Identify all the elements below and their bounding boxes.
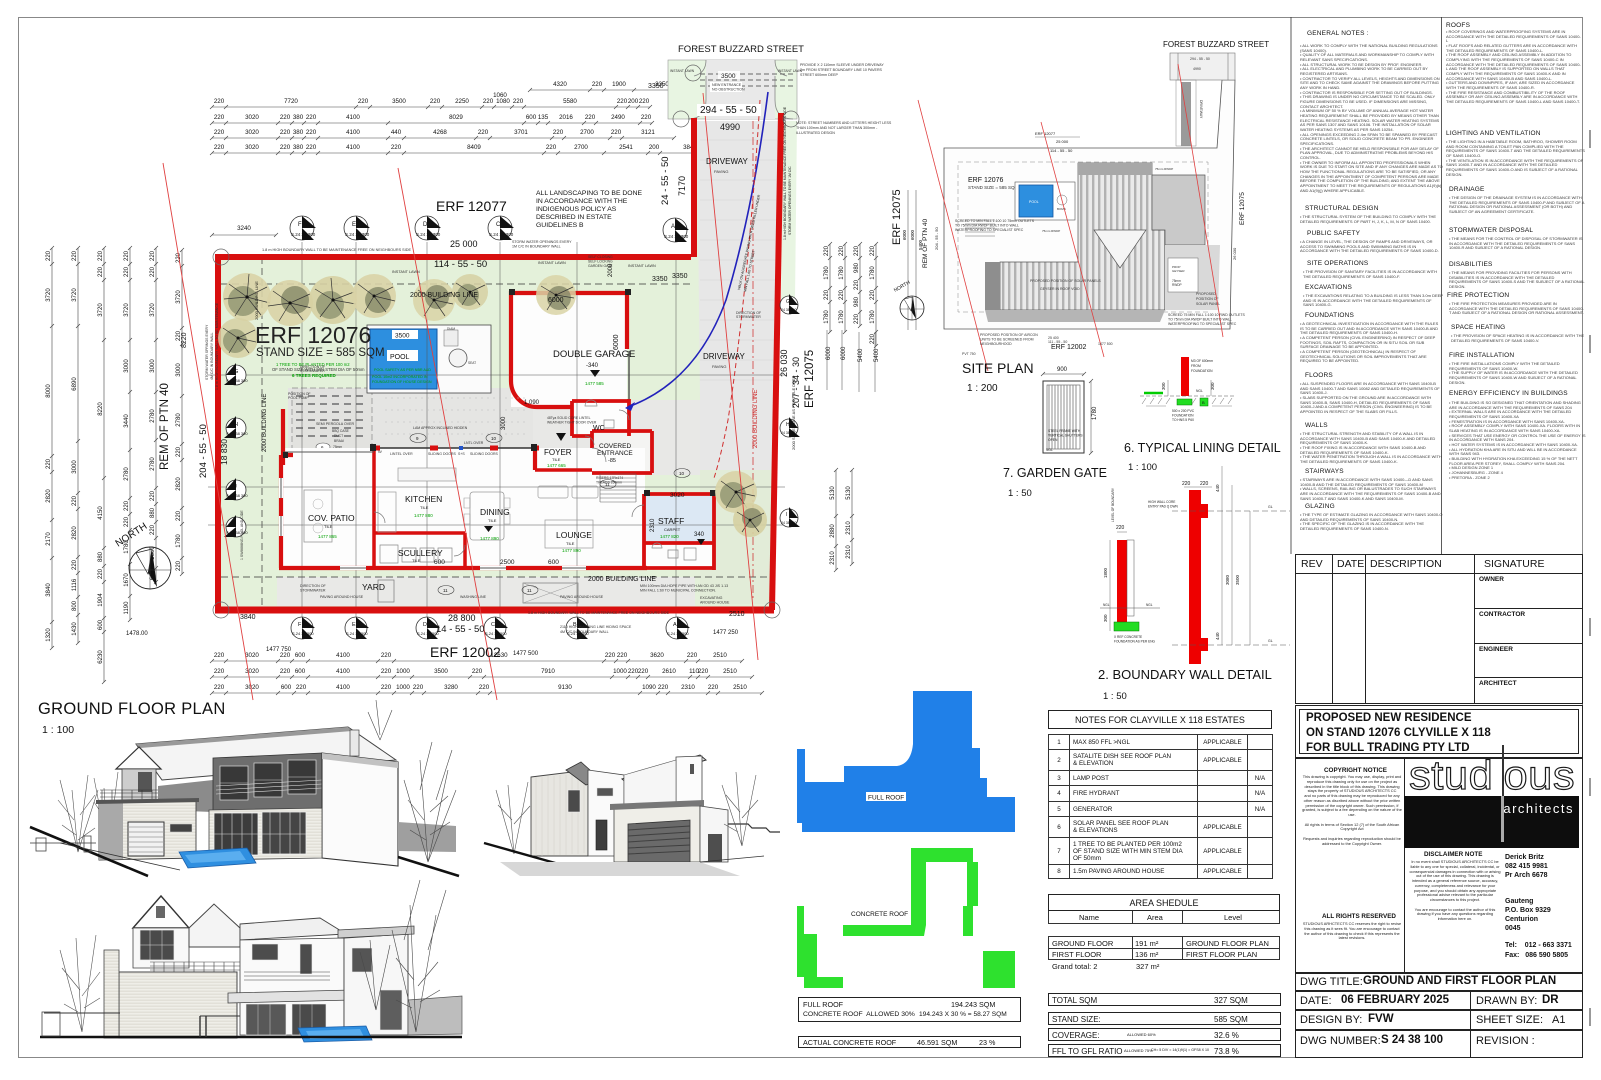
svg-text:LAM APPROX INCLINED HIDDEN: LAM APPROX INCLINED HIDDEN — [413, 426, 468, 430]
svg-text:GL: GL — [1268, 505, 1273, 509]
svg-text:220: 220 — [214, 144, 225, 151]
svg-text:500 x 200 PVC: 500 x 200 PVC — [1172, 409, 1195, 413]
svg-text:1 SWIMMING POOL AND CIDE: 1 SWIMMING POOL AND CIDE — [240, 510, 244, 560]
svg-text:POOL SAFETY AS PER NBR A&D: POOL SAFETY AS PER NBR A&D — [374, 368, 431, 372]
svg-text:5130: 5130 — [830, 486, 836, 500]
svg-text:2510: 2510 — [713, 652, 727, 659]
svg-text:-340: -340 — [586, 363, 599, 369]
svg-text:STORMWATER: STORMWATER — [300, 589, 326, 593]
svg-text:STAFF: STAFF — [658, 516, 684, 526]
svg-text:2780: 2780 — [150, 457, 156, 471]
svg-text:COVERED: COVERED — [599, 443, 631, 450]
svg-text:1000: 1000 — [613, 668, 627, 675]
svg-text:3240: 3240 — [237, 225, 251, 232]
svg-text:440: 440 — [1215, 484, 1220, 492]
svg-text:ALL LANDSCAPING TO BE DONE: ALL LANDSCAPING TO BE DONE — [536, 190, 642, 197]
svg-text:11: 11 — [527, 588, 532, 593]
svg-text:1080: 1080 — [496, 98, 510, 105]
svg-text:114 - 55 - 50: 114 - 55 - 50 — [434, 259, 487, 270]
svg-text:220: 220 — [150, 250, 156, 261]
svg-text:2820: 2820 — [176, 477, 182, 491]
svg-text:1780: 1780 — [176, 534, 182, 548]
svg-text:TILE: TILE — [552, 457, 561, 462]
svg-text:4100: 4100 — [336, 668, 350, 675]
svg-text:7170: 7170 — [677, 176, 687, 196]
svg-text:220: 220 — [124, 500, 130, 511]
svg-text:LEVEL OF BOUNDARY: LEVEL OF BOUNDARY — [1111, 487, 1115, 522]
svg-text:HIGH WALL CORE: HIGH WALL CORE — [1148, 500, 1175, 504]
svg-text:24 38 300: 24 38 300 — [781, 521, 797, 525]
svg-text:220: 220 — [870, 245, 876, 256]
svg-text:PAVING: PAVING — [714, 169, 729, 174]
svg-text:3720: 3720 — [46, 288, 52, 302]
svg-text:TO HNS 5 P60: TO HNS 5 P60 — [1172, 418, 1194, 422]
svg-text:SOLAR PANEL: SOLAR PANEL — [1196, 302, 1220, 306]
svg-text:135: 135 — [538, 114, 549, 121]
svg-text:220: 220 — [150, 524, 156, 535]
svg-text:3840: 3840 — [240, 614, 256, 621]
svg-text:2000 BUILDING LINE: 2000 BUILDING LINE — [254, 281, 259, 320]
svg-text:BBQ CASE: BBQ CASE — [332, 429, 350, 433]
svg-text:1477 890: 1477 890 — [562, 548, 581, 553]
svg-text:2000: 2000 — [608, 263, 614, 277]
svg-text:I: I — [786, 512, 787, 518]
svg-text:204 - 55 - 50: 204 - 55 - 50 — [934, 227, 939, 250]
svg-text:3020: 3020 — [245, 668, 259, 675]
svg-text:S.24 38 300: S.24 38 300 — [485, 631, 507, 636]
svg-text:220: 220 — [214, 652, 225, 659]
svg-text:DRIVEWAY: DRIVEWAY — [706, 157, 748, 166]
svg-text:2310: 2310 — [681, 684, 695, 691]
svg-text:SCREED TO MIN FALL 1:100 10 75: SCREED TO MIN FALL 1:100 10 75mm OUTLETS — [955, 219, 1035, 223]
svg-text:3500: 3500 — [1235, 574, 1240, 585]
svg-text:DOUBLE GARAGE: DOUBLE GARAGE — [553, 349, 635, 360]
svg-text:STEEL FRAME WITH: STEEL FRAME WITH — [1048, 429, 1081, 433]
svg-text:STORM WATER OPENINGS EVERY: STORM WATER OPENINGS EVERY — [512, 240, 572, 244]
svg-text:3500: 3500 — [392, 98, 406, 105]
svg-text:220: 220 — [870, 289, 876, 300]
svg-text:7. GARDEN GATE: 7. GARDEN GATE — [1003, 466, 1107, 480]
svg-text:DIRECTION OF: DIRECTION OF — [300, 584, 327, 588]
svg-text:SELF LOCKING: SELF LOCKING — [588, 260, 613, 264]
svg-text:5130: 5130 — [846, 486, 852, 500]
svg-text:TO 75mm DIA RWDP BUILT INTO WA: TO 75mm DIA RWDP BUILT INTO WALL — [1168, 318, 1232, 322]
svg-text:WATERPROOFING TO SPECIALIST SP: WATERPROOFING TO SPECIALIST SPEC — [1168, 322, 1237, 326]
svg-text:1.8 m HIGH BOUNDARY WALL TO B: 1.8 m HIGH BOUNDARY WALL TO BE MAINTENAN… — [528, 611, 670, 615]
svg-text:220: 220 — [617, 98, 628, 105]
svg-text:2610: 2610 — [662, 668, 676, 675]
svg-text:220: 220 — [381, 684, 392, 691]
svg-text:2780: 2780 — [176, 413, 182, 427]
svg-text:ERF 12002: ERF 12002 — [1051, 344, 1087, 351]
svg-text:3350: 3350 — [648, 83, 664, 90]
svg-text:4100: 4100 — [346, 144, 360, 151]
svg-text:INSTANT LAWN: INSTANT LAWN — [538, 261, 566, 265]
svg-text:220: 220 — [513, 98, 524, 105]
svg-text:ERF 12076: ERF 12076 — [968, 177, 1004, 184]
svg-text:24 - 55 - 50: 24 - 55 - 50 — [660, 156, 671, 205]
svg-text:2. BOUNDARY WALL DETAIL: 2. BOUNDARY WALL DETAIL — [1098, 667, 1272, 682]
svg-text:1780: 1780 — [870, 266, 876, 280]
svg-text:EXCAVATING: EXCAVATING — [700, 596, 723, 600]
svg-text:LINTEL OVER: LINTEL OVER — [390, 452, 413, 456]
svg-text:220: 220 — [641, 114, 652, 121]
svg-text:2780: 2780 — [124, 467, 130, 481]
svg-text:PROPOSED POSITION OF SOLAR PA: PROPOSED POSITION OF SOLAR PANELS — [1030, 279, 1101, 283]
svg-text:2510: 2510 — [723, 668, 737, 675]
svg-text:TILE: TILE — [324, 524, 333, 529]
svg-text:S.24 38 300: S.24 38 300 — [226, 493, 248, 498]
svg-text:F: F — [298, 222, 302, 228]
svg-text:1477 500: 1477 500 — [513, 651, 539, 657]
svg-text:75mm RWDP: 75mm RWDP — [1042, 229, 1060, 233]
svg-text:NGL: NGL — [1046, 448, 1053, 452]
svg-text:1477 865: 1477 865 — [318, 534, 337, 539]
svg-text:980: 980 — [854, 262, 860, 273]
svg-text:ERF 12075: ERF 12075 — [1239, 192, 1246, 225]
svg-text:ERF 12076: ERF 12076 — [255, 322, 371, 348]
svg-text:800: 800 — [72, 600, 78, 611]
svg-text:18 830: 18 830 — [219, 439, 229, 465]
svg-text:10: 10 — [679, 471, 685, 476]
svg-text:INSTANT LAWN: INSTANT LAWN — [778, 69, 803, 73]
svg-text:220: 220 — [1116, 525, 1125, 531]
svg-text:S.24 38 300: S.24 38 300 — [345, 232, 370, 237]
svg-text:1904: 1904 — [98, 593, 104, 607]
svg-text:220: 220 — [124, 516, 130, 527]
svg-text:AROUND HOUSE: AROUND HOUSE — [700, 601, 730, 605]
svg-text:6 TREES REQUIRED: 6 TREES REQUIRED — [292, 373, 337, 378]
svg-text:ERF 12077: ERF 12077 — [1035, 131, 1056, 136]
svg-text:PAVING AROUND HOUSE: PAVING AROUND HOUSE — [560, 595, 604, 599]
svg-text:1090: 1090 — [642, 684, 656, 691]
svg-text:6000: 6000 — [548, 297, 564, 304]
svg-text:1780: 1780 — [839, 310, 845, 324]
svg-text:3000: 3000 — [150, 359, 156, 373]
svg-text:220: 220 — [381, 668, 392, 675]
svg-text:220: 220 — [472, 668, 483, 675]
svg-text:LOUNGE: LOUNGE — [556, 530, 592, 540]
svg-text:2510: 2510 — [733, 684, 747, 691]
svg-text:220: 220 — [98, 250, 104, 261]
svg-text:1M C/C IN BOUNDARY WALL: 1M C/C IN BOUNDARY WALL — [512, 245, 561, 249]
svg-text:YARD: YARD — [362, 582, 385, 592]
svg-text:S.24 38 300: S.24 38 300 — [667, 631, 689, 636]
svg-text:1780: 1780 — [839, 266, 845, 280]
svg-text:E: E — [352, 622, 356, 628]
svg-text:2700: 2700 — [574, 144, 588, 151]
svg-text:SEMI PERGOLA OVER: SEMI PERGOLA OVER — [316, 422, 355, 426]
svg-text:220: 220 — [176, 446, 182, 457]
svg-text:220: 220 — [280, 114, 291, 121]
svg-text:ENTRY PAD Q DWN: ENTRY PAD Q DWN — [1148, 505, 1178, 509]
svg-text:600: 600 — [281, 684, 292, 691]
svg-text:TILE: TILE — [566, 541, 575, 546]
svg-text:220: 220 — [854, 279, 860, 290]
svg-text:NEIGHBOURHOOD: NEIGHBOURHOOD — [980, 342, 1012, 346]
svg-text:NOTE: STREET NUMBERS AND LETTE: NOTE: STREET NUMBERS AND LETTERS HEIGHT … — [796, 121, 892, 125]
svg-text:DIAM: DIAM — [447, 327, 455, 331]
svg-text:WATERPROOFING TO SPECIALIST SP: WATERPROOFING TO SPECIALIST SPEC — [955, 228, 1024, 232]
svg-text:2490: 2490 — [611, 114, 625, 121]
svg-text:DRIVEWAY: DRIVEWAY — [703, 352, 745, 361]
svg-text:S.24 38 300: S.24 38 300 — [226, 378, 248, 383]
svg-text:INSTANT LAWN: INSTANT LAWN — [628, 264, 656, 268]
svg-text:STORMWATER: STORMWATER — [736, 315, 761, 319]
svg-text:FOUNDATION OF HOUSE DESIGN: FOUNDATION OF HOUSE DESIGN — [372, 380, 432, 384]
svg-text:3080: 3080 — [1225, 574, 1230, 585]
svg-text:4100: 4100 — [346, 129, 360, 136]
svg-text:4100: 4100 — [336, 684, 350, 691]
svg-text:REM OF PTN 40: REM OF PTN 40 — [922, 218, 929, 268]
svg-text:FOREST BUZZARD STREET: FOREST BUZZARD STREET — [678, 44, 804, 55]
svg-text:220: 220 — [605, 652, 616, 659]
svg-text:3280: 3280 — [444, 684, 458, 691]
svg-text:2170: 2170 — [46, 532, 52, 546]
svg-text:S+S: S+S — [458, 452, 465, 456]
svg-text:SELF CLOSING: SELF CLOSING — [588, 255, 613, 259]
svg-text:220: 220 — [687, 652, 698, 659]
svg-text:440: 440 — [391, 129, 402, 136]
svg-text:8220: 8220 — [181, 332, 188, 348]
svg-text:1000: 1000 — [396, 668, 410, 675]
svg-text:220: 220 — [98, 266, 104, 277]
svg-text:POOL PUMP: POOL PUMP — [288, 396, 309, 400]
svg-text:1477 500: 1477 500 — [1098, 342, 1113, 346]
svg-text:S.24 38 300: S.24 38 300 — [226, 530, 248, 535]
svg-text:8000: 8000 — [46, 384, 52, 398]
svg-text:1477 250: 1477 250 — [713, 630, 739, 636]
svg-text:INDIGENOUS POLICY AS: INDIGENOUS POLICY AS — [536, 206, 617, 213]
svg-text:1780: 1780 — [824, 266, 830, 280]
svg-text:STORM WATER OPENINGS EVERY 1M: STORM WATER OPENINGS EVERY 1M C/C — [788, 166, 792, 235]
svg-text:3020: 3020 — [245, 129, 259, 136]
svg-text:220: 220 — [358, 98, 369, 105]
svg-text:5400: 5400 — [918, 239, 923, 250]
svg-text:220: 220 — [280, 668, 291, 675]
svg-text:26 030: 26 030 — [779, 349, 789, 377]
svg-text:FOUNDATION AS PER ENG: FOUNDATION AS PER ENG — [1114, 640, 1156, 644]
svg-text:204 - 55 - 50: 204 - 55 - 50 — [198, 424, 209, 478]
svg-text:LNTL OVER: LNTL OVER — [464, 441, 484, 445]
svg-text:10: 10 — [491, 436, 497, 441]
svg-text:24 38 300: 24 38 300 — [781, 308, 797, 312]
svg-text:220: 220 — [72, 495, 78, 506]
svg-text:SLIDING DOORS: SLIDING DOORS — [428, 452, 456, 456]
svg-text:4100: 4100 — [346, 114, 360, 121]
svg-text:220: 220 — [72, 250, 78, 261]
svg-text:S.24 38 300: S.24 38 300 — [292, 631, 314, 636]
svg-text:220: 220 — [824, 289, 830, 300]
svg-text:220: 220 — [176, 510, 182, 521]
svg-text:NEW ENTRANCE: NEW ENTRANCE — [712, 83, 742, 87]
svg-text:1190: 1190 — [124, 601, 130, 615]
svg-text:3350: 3350 — [672, 273, 688, 280]
svg-text:THAN 100mm AND NOT LARGER THA: THAN 100mm AND NOT LARGER THAN 300mm - — [796, 126, 878, 130]
svg-text:220: 220 — [553, 129, 564, 136]
svg-text:600: 600 — [434, 559, 445, 566]
svg-text:PROVIDE X 2 110mm SLEEVE UNDER: PROVIDE X 2 110mm SLEEVE UNDER DRIVEWAY — [800, 63, 884, 67]
svg-text:PAVING: PAVING — [712, 364, 727, 369]
svg-text:4M C/C IN BOUNDARY WALL: 4M C/C IN BOUNDARY WALL — [560, 630, 609, 634]
svg-text:1800: 1800 — [1103, 567, 1108, 578]
svg-text:220: 220 — [479, 684, 490, 691]
svg-text:S.24 38 300: S.24 38 300 — [226, 431, 248, 436]
svg-text:3000: 3000 — [176, 363, 182, 377]
svg-text:220: 220 — [708, 684, 719, 691]
svg-text:220: 220 — [638, 668, 649, 675]
svg-text:1,090: 1,090 — [524, 400, 540, 406]
svg-text:GUIDELINES B: GUIDELINES B — [536, 222, 584, 229]
svg-text:1900: 1900 — [612, 81, 626, 88]
svg-text:PROPOSED POSITION OF AIRCON: PROPOSED POSITION OF AIRCON — [980, 333, 1038, 337]
svg-text:J: J — [234, 484, 237, 490]
svg-text:BRAAI: BRAAI — [334, 439, 344, 443]
svg-text:NGL: NGL — [1196, 389, 1203, 393]
svg-text:VERTICAL SHUTTERS: VERTICAL SHUTTERS — [1048, 434, 1083, 438]
svg-text:220: 220 — [124, 250, 130, 261]
svg-text:6230: 6230 — [98, 650, 104, 664]
svg-text:MIN FALL 1:60 TO MUNICIPAL CON: MIN FALL 1:60 TO MUNICIPAL CONNECTION. — [640, 589, 716, 593]
svg-text:CARPET: CARPET — [664, 527, 681, 532]
svg-text:W: W — [378, 449, 382, 454]
svg-text:1 : 200: 1 : 200 — [967, 383, 998, 394]
svg-text:220: 220 — [214, 114, 225, 121]
svg-text:FOYER: FOYER — [544, 448, 572, 457]
svg-text:STAND SIZE = 585 SQM: STAND SIZE = 585 SQM — [968, 185, 1019, 190]
svg-text:14 - 55 - 50: 14 - 55 - 50 — [436, 624, 485, 635]
svg-text:POOL 10m2 INCORPORATED IN: POOL 10m2 INCORPORATED IN — [372, 375, 428, 379]
svg-text:PAVING AROUND HOUSE: PAVING AROUND HOUSE — [320, 595, 364, 599]
svg-text:600: 600 — [98, 619, 104, 630]
svg-text:2310: 2310 — [650, 518, 656, 532]
svg-text:STORMWATER: STORMWATER — [300, 369, 325, 373]
svg-text:KITCHEN: KITCHEN — [405, 494, 442, 504]
svg-text:220: 220 — [592, 81, 603, 88]
svg-text:3701: 3701 — [514, 129, 528, 136]
svg-text:3840: 3840 — [46, 583, 52, 597]
svg-text:220: 220 — [430, 98, 441, 105]
svg-text:STREET 600mm DEEP: STREET 600mm DEEP — [800, 73, 838, 77]
svg-text:1060: 1060 — [493, 92, 507, 99]
svg-text:220: 220 — [854, 313, 860, 324]
svg-text:POOL: POOL — [390, 354, 410, 361]
svg-text:2780: 2780 — [150, 409, 156, 423]
svg-text:3350: 3350 — [652, 276, 668, 283]
svg-text:2000 BUILDING LINE: 2000 BUILDING LINE — [753, 390, 759, 448]
svg-text:ENTRANCE: ENTRANCE — [597, 450, 633, 457]
svg-text:2310: 2310 — [830, 551, 836, 565]
svg-text:220: 220 — [306, 114, 317, 121]
svg-text:1 : 100: 1 : 100 — [1128, 462, 1157, 473]
svg-text:200: 200 — [649, 144, 660, 151]
svg-text:2880: 2880 — [830, 524, 836, 538]
svg-text:PVT 750: PVT 750 — [962, 352, 976, 356]
svg-text:FOREST BUZZARD STREET: FOREST BUZZARD STREET — [1163, 40, 1269, 49]
svg-text:S.24 38 300: S.24 38 300 — [664, 234, 689, 239]
svg-text:INSTANT LAWN: INSTANT LAWN — [670, 69, 695, 73]
svg-text:S.24 38 300: S.24 38 300 — [291, 232, 316, 237]
svg-text:220: 220 — [585, 114, 596, 121]
svg-text:220: 220 — [150, 266, 156, 277]
svg-text:220: 220 — [150, 490, 156, 501]
svg-text:NGL: NGL — [1146, 603, 1153, 607]
svg-text:3500: 3500 — [395, 333, 410, 340]
svg-text:220: 220 — [854, 245, 860, 256]
svg-text:WEATHER TIGHT DOOR OVER: WEATHER TIGHT DOOR OVER — [547, 421, 597, 425]
svg-text:1478.00: 1478.00 — [126, 631, 148, 637]
svg-text:MIN 100mm DIA HDPE PIPE WITH A: MIN 100mm DIA HDPE PIPE WITH AN OD 43 JI… — [640, 584, 728, 588]
svg-text:SLIDING DOORS: SLIDING DOORS — [470, 452, 498, 456]
svg-text:1477 890: 1477 890 — [480, 536, 499, 541]
svg-text:3020: 3020 — [245, 652, 259, 659]
svg-text:340: 340 — [694, 532, 705, 538]
svg-text:220: 220 — [381, 652, 392, 659]
svg-text:S.24 38 300: S.24 38 300 — [489, 232, 514, 237]
svg-text:4320: 4320 — [553, 81, 567, 88]
svg-text:380: 380 — [293, 114, 304, 121]
svg-text:6890: 6890 — [72, 377, 78, 391]
svg-text:4990: 4990 — [1193, 67, 1201, 71]
svg-text:600: 600 — [526, 114, 537, 121]
svg-text:220: 220 — [698, 668, 709, 675]
svg-text:DRIVEWAY: DRIVEWAY — [1199, 100, 1203, 119]
svg-text:600: 600 — [295, 652, 306, 659]
svg-text:6000: 6000 — [910, 229, 915, 240]
svg-text:3000: 3000 — [124, 359, 130, 373]
svg-text:3720: 3720 — [124, 303, 130, 317]
svg-text:1477 750: 1477 750 — [266, 647, 292, 653]
svg-text:6000: 6000 — [613, 334, 620, 350]
svg-text:D: D — [423, 622, 427, 628]
svg-text:TILE: TILE — [420, 505, 429, 510]
svg-text:300: 300 — [1161, 382, 1166, 390]
svg-text:1.8 m HIGH BOUNDARY WALL TO BE: 1.8 m HIGH BOUNDARY WALL TO BE MAINTENAN… — [783, 106, 787, 240]
svg-text:3020: 3020 — [245, 144, 259, 151]
svg-text:220: 220 — [214, 684, 225, 691]
svg-text:4100: 4100 — [336, 652, 350, 659]
svg-text:TREADS 250mm: TREADS 250mm — [596, 481, 622, 485]
svg-text:200: 200 — [628, 98, 639, 105]
svg-text:DESCRIBED IN ESTATE: DESCRIBED IN ESTATE — [536, 214, 612, 221]
svg-text:8409: 8409 — [467, 144, 481, 151]
svg-text:S.24 38 300: S.24 38 300 — [416, 232, 441, 237]
svg-text:220: 220 — [306, 144, 317, 151]
svg-text:48Tya SOLID CORE LINTEL: 48Tya SOLID CORE LINTEL — [547, 416, 591, 420]
svg-text:RWDP: RWDP — [1172, 283, 1182, 287]
svg-text:1.8 m HIGH BOUNDARY WALL TO BE: 1.8 m HIGH BOUNDARY WALL TO BE MAINTENAN… — [215, 302, 219, 390]
svg-text:DUCT: DUCT — [334, 434, 343, 438]
svg-text:880: 880 — [150, 507, 156, 518]
svg-text:S.24 38 300: S.24 38 300 — [346, 631, 368, 636]
svg-text:3020: 3020 — [670, 492, 685, 499]
svg-text:2016: 2016 — [559, 114, 573, 121]
svg-text:25 000: 25 000 — [1056, 139, 1069, 144]
svg-text:4990: 4990 — [720, 122, 740, 132]
svg-text:2820: 2820 — [72, 526, 78, 540]
svg-text:220: 220 — [46, 458, 52, 469]
svg-text:5580: 5580 — [563, 98, 577, 105]
svg-text:2820: 2820 — [46, 489, 52, 503]
svg-text:2500: 2500 — [500, 559, 515, 566]
svg-text:NGL: NGL — [1103, 603, 1110, 607]
svg-text:2310: 2310 — [846, 545, 852, 559]
svg-text:IN ACCORDANCE WITH THE: IN ACCORDANCE WITH THE — [536, 198, 628, 205]
svg-text:8029: 8029 — [449, 114, 463, 121]
svg-text:SEAT: SEAT — [468, 361, 476, 365]
svg-text:220: 220 — [546, 144, 557, 151]
svg-text:220: 220 — [124, 266, 130, 277]
